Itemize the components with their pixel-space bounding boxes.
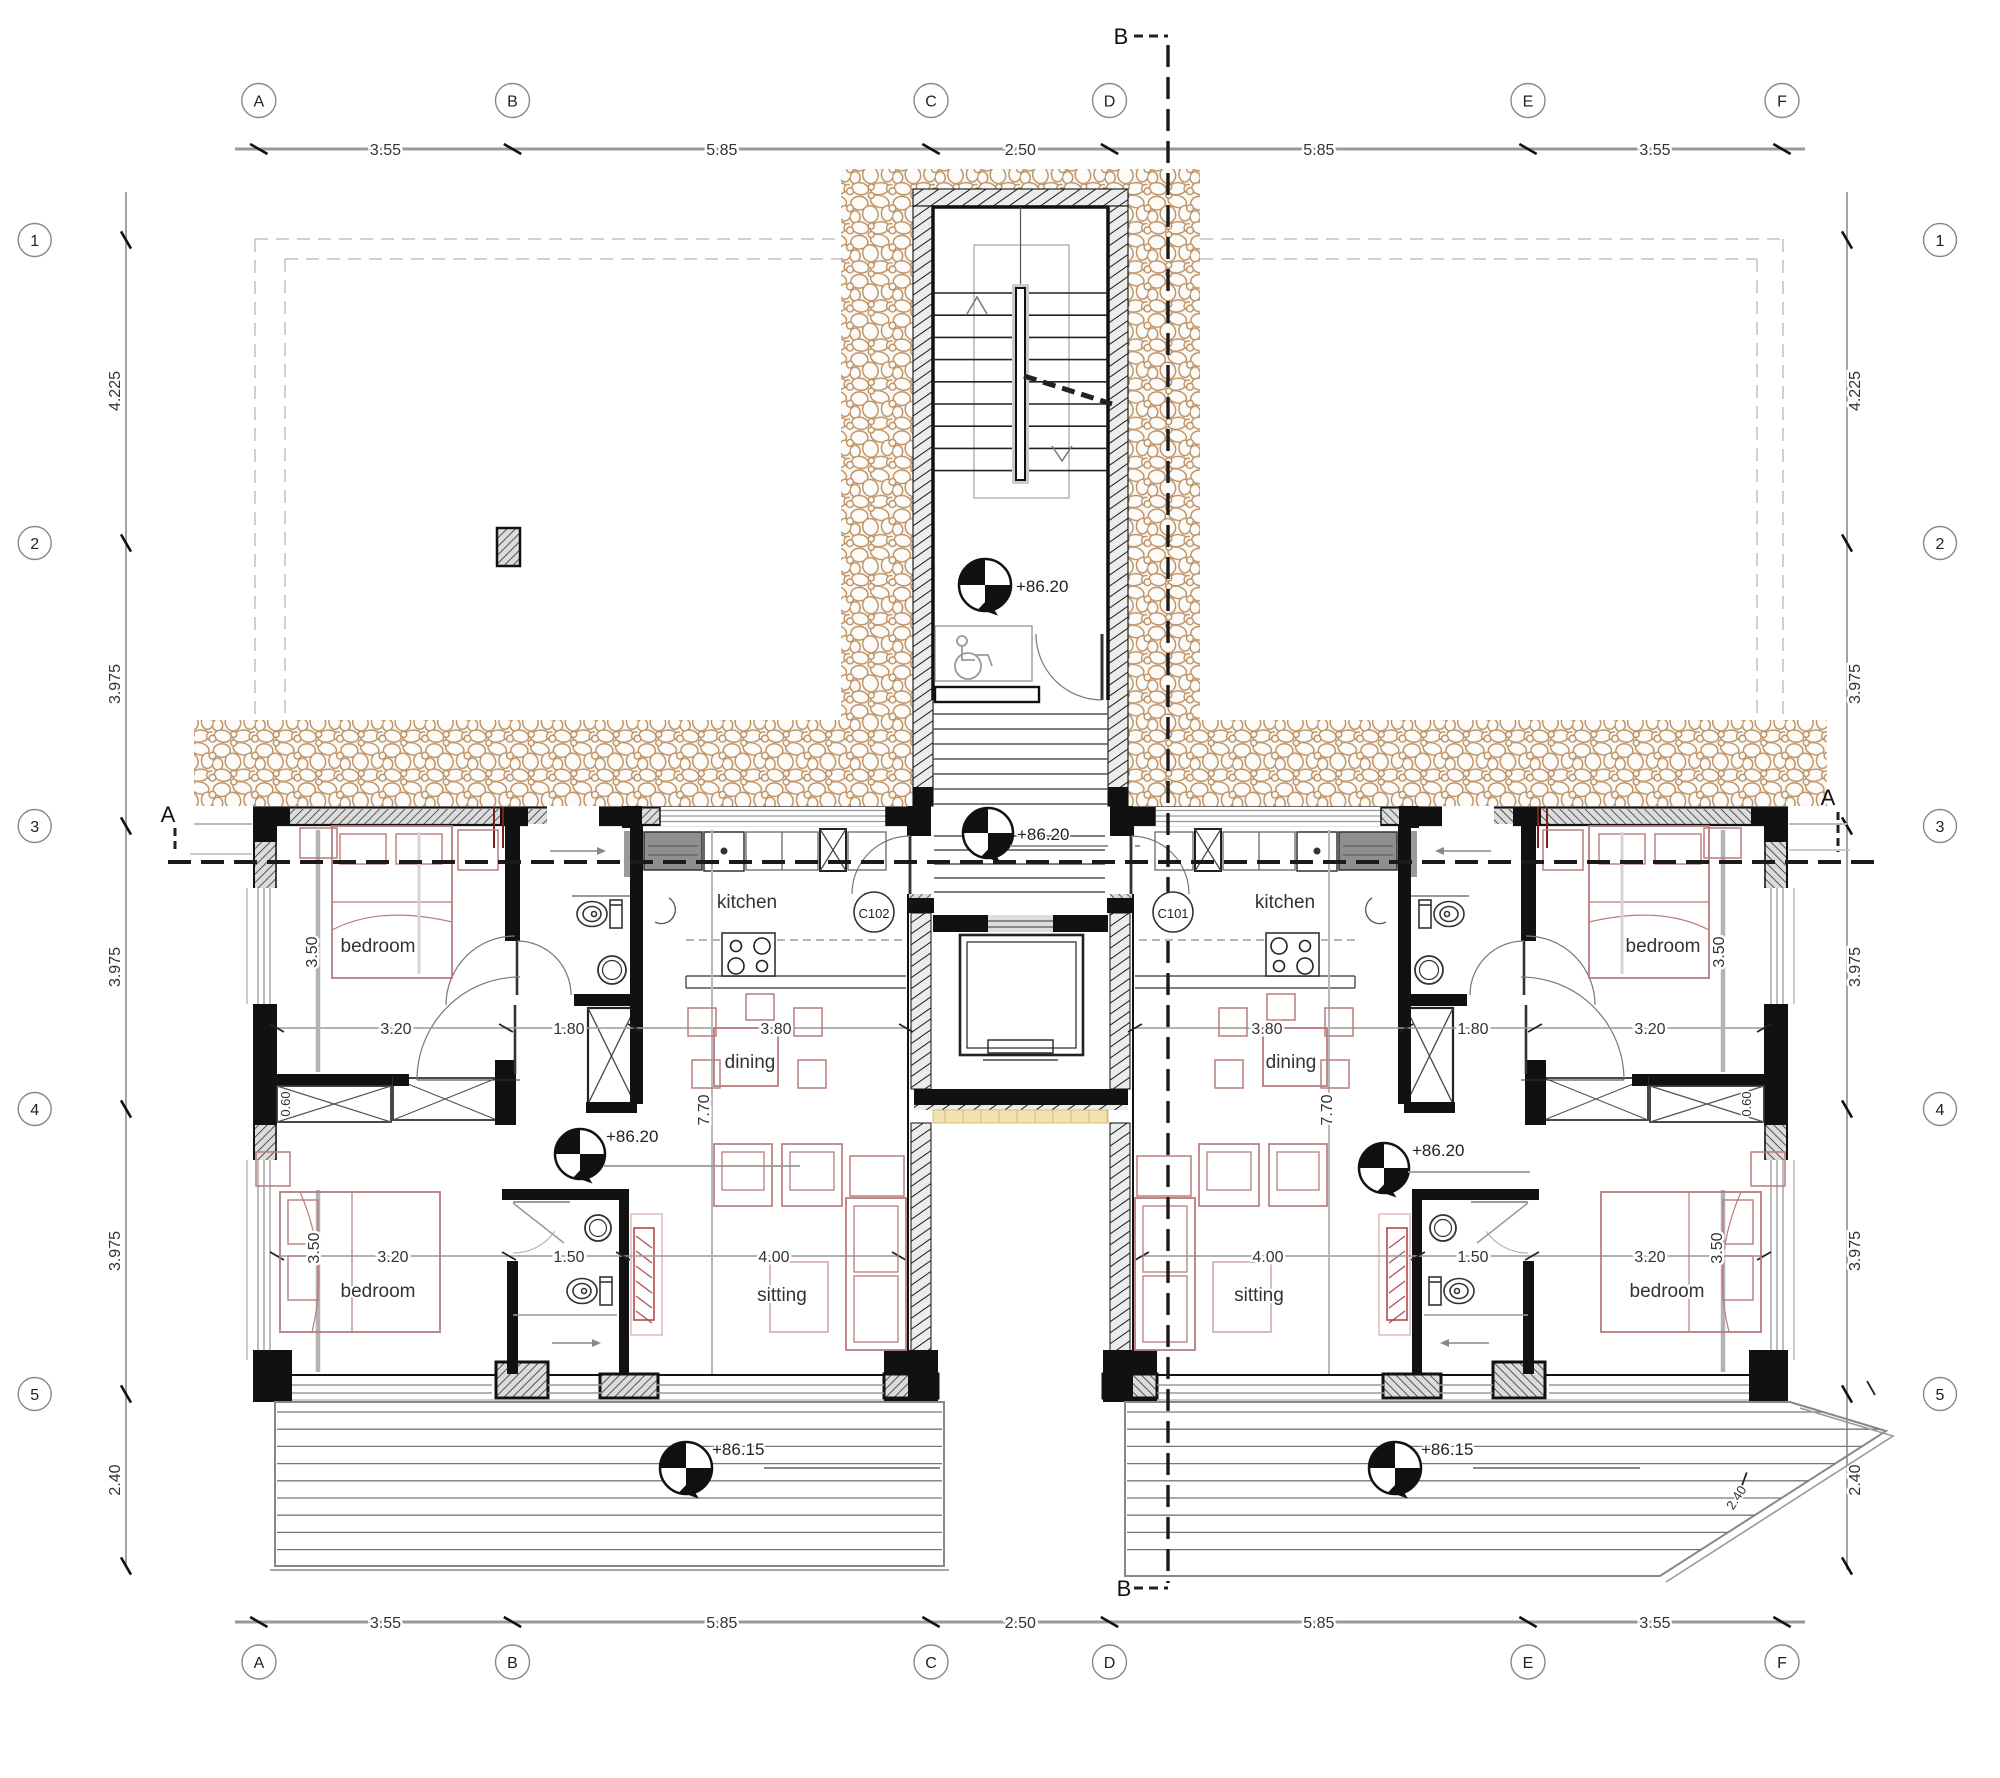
svg-text:2: 2 <box>1936 536 1945 553</box>
svg-text:3.50: 3.50 <box>1711 936 1728 967</box>
svg-text:1.80: 1.80 <box>1457 1021 1488 1038</box>
svg-text:3.975: 3.975 <box>1847 664 1864 704</box>
svg-text:2.50: 2.50 <box>1005 142 1036 159</box>
svg-text:bedroom: bedroom <box>1626 936 1701 957</box>
svg-text:+86.20: +86.20 <box>1412 1141 1464 1160</box>
svg-text:4.225: 4.225 <box>1847 371 1864 411</box>
svg-text:4.225: 4.225 <box>107 371 124 411</box>
svg-text:3.975: 3.975 <box>1847 947 1864 987</box>
svg-text:3: 3 <box>1936 819 1945 836</box>
svg-text:3.55: 3.55 <box>370 142 401 159</box>
svg-text:1.80: 1.80 <box>553 1021 584 1038</box>
svg-text:4.00: 4.00 <box>1252 1249 1283 1266</box>
svg-text:7.70: 7.70 <box>1319 1094 1336 1125</box>
svg-text:bedroom: bedroom <box>1630 1281 1705 1302</box>
svg-text:B: B <box>1114 24 1129 49</box>
svg-text:4.00: 4.00 <box>758 1249 789 1266</box>
svg-text:A: A <box>161 802 176 827</box>
svg-text:4: 4 <box>30 1102 39 1119</box>
svg-text:B: B <box>1117 1576 1132 1601</box>
svg-text:2.40: 2.40 <box>1847 1464 1864 1495</box>
svg-text:5.85: 5.85 <box>1303 142 1334 159</box>
svg-text:3.975: 3.975 <box>107 947 124 987</box>
svg-text:F: F <box>1777 94 1787 111</box>
svg-text:sitting: sitting <box>757 1285 807 1306</box>
svg-text:3.50: 3.50 <box>304 936 321 967</box>
svg-text:0.60: 0.60 <box>278 1091 293 1116</box>
svg-text:+86.15: +86.15 <box>712 1440 764 1459</box>
svg-text:dining: dining <box>1266 1052 1317 1073</box>
svg-text:A: A <box>253 94 264 111</box>
svg-text:3: 3 <box>30 819 39 836</box>
svg-text:3.20: 3.20 <box>380 1021 411 1038</box>
svg-text:1: 1 <box>30 233 39 250</box>
svg-text:3.80: 3.80 <box>1251 1021 1282 1038</box>
svg-text:2.40: 2.40 <box>107 1464 124 1495</box>
svg-text:3.80: 3.80 <box>760 1021 791 1038</box>
svg-text:5.85: 5.85 <box>1303 1615 1334 1632</box>
svg-text:E: E <box>1523 94 1534 111</box>
svg-text:2.50: 2.50 <box>1005 1615 1036 1632</box>
svg-text:2: 2 <box>30 536 39 553</box>
svg-text:1.50: 1.50 <box>1457 1249 1488 1266</box>
svg-text:5.85: 5.85 <box>706 1615 737 1632</box>
svg-text:C101: C101 <box>1157 906 1188 921</box>
svg-text:3.55: 3.55 <box>1639 1615 1670 1632</box>
svg-text:5: 5 <box>30 1387 39 1404</box>
svg-text:3.55: 3.55 <box>1639 142 1670 159</box>
svg-text:bedroom: bedroom <box>341 936 416 957</box>
svg-text:A: A <box>254 1655 265 1672</box>
svg-text:3.975: 3.975 <box>107 1231 124 1271</box>
svg-text:1.50: 1.50 <box>553 1249 584 1266</box>
svg-text:dining: dining <box>725 1052 776 1073</box>
svg-text:+86.20: +86.20 <box>606 1127 658 1146</box>
svg-text:kitchen: kitchen <box>1255 892 1315 913</box>
svg-text:7.70: 7.70 <box>696 1094 713 1125</box>
svg-text:kitchen: kitchen <box>717 892 777 913</box>
svg-text:+86.20: +86.20 <box>1016 577 1068 596</box>
svg-text:5.85: 5.85 <box>706 142 737 159</box>
svg-text:1: 1 <box>1936 233 1945 250</box>
svg-text:C102: C102 <box>858 906 889 921</box>
svg-text:4: 4 <box>1936 1102 1945 1119</box>
svg-text:3.20: 3.20 <box>1634 1249 1665 1266</box>
svg-text:3.50: 3.50 <box>1709 1232 1726 1263</box>
svg-text:3.55: 3.55 <box>370 1615 401 1632</box>
svg-text:5: 5 <box>1936 1387 1945 1404</box>
svg-text:3.20: 3.20 <box>377 1249 408 1266</box>
svg-text:F: F <box>1777 1655 1787 1672</box>
svg-text:3.975: 3.975 <box>1847 1231 1864 1271</box>
svg-text:3.20: 3.20 <box>1634 1021 1665 1038</box>
svg-text:E: E <box>1523 1655 1534 1672</box>
svg-text:C: C <box>925 94 937 111</box>
svg-text:+86.20: +86.20 <box>1017 825 1069 844</box>
svg-text:0.60: 0.60 <box>1739 1091 1754 1116</box>
svg-text:A: A <box>1821 785 1836 810</box>
svg-text:3.50: 3.50 <box>306 1232 323 1263</box>
svg-text:+86.15: +86.15 <box>1421 1440 1473 1459</box>
svg-text:D: D <box>1104 1655 1116 1672</box>
svg-text:D: D <box>1104 94 1116 111</box>
svg-text:C: C <box>925 1655 937 1672</box>
svg-text:bedroom: bedroom <box>341 1281 416 1302</box>
svg-text:3.975: 3.975 <box>107 664 124 704</box>
svg-text:B: B <box>507 1655 518 1672</box>
svg-text:sitting: sitting <box>1234 1285 1284 1306</box>
svg-text:B: B <box>507 94 518 111</box>
